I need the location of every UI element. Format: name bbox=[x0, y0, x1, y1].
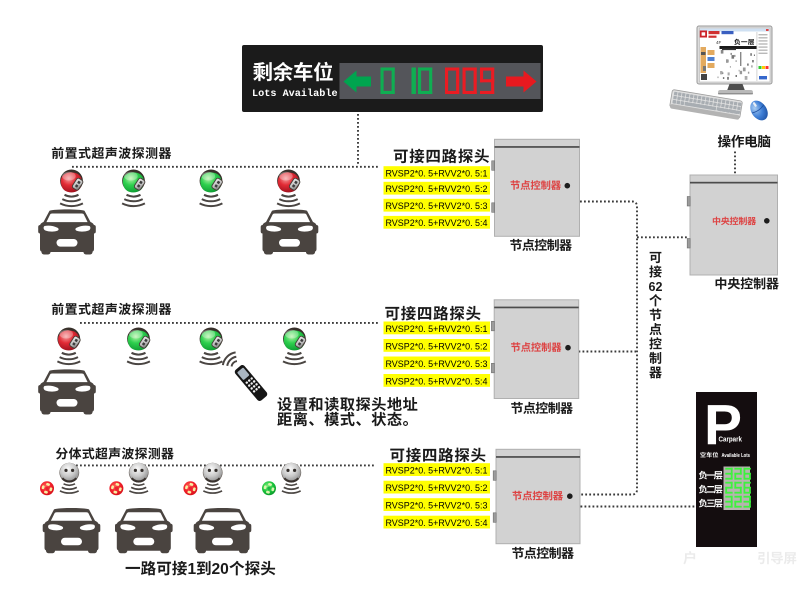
svg-text:RVSP2*0. 5+RVV2*0. 5:2: RVSP2*0. 5+RVV2*0. 5:2 bbox=[386, 341, 488, 351]
svg-text:Available Lots: Available Lots bbox=[722, 453, 751, 459]
svg-text:RVSP2*0. 5+RVV2*0. 5:3: RVSP2*0. 5+RVV2*0. 5:3 bbox=[386, 501, 488, 511]
svg-text:RVSP2*0. 5+RVV2*0. 5:4: RVSP2*0. 5+RVV2*0. 5:4 bbox=[386, 218, 488, 228]
svg-text:RVSP2*0. 5+RVV2*0. 5:4: RVSP2*0. 5+RVV2*0. 5:4 bbox=[386, 518, 488, 528]
svg-text:RVSP2*0. 5+RVV2*0. 5:4: RVSP2*0. 5+RVV2*0. 5:4 bbox=[386, 376, 488, 386]
svg-text:RVSP2*0. 5+RVV2*0. 5:1: RVSP2*0. 5+RVV2*0. 5:1 bbox=[386, 169, 488, 179]
svg-text:P: P bbox=[704, 393, 742, 457]
svg-text:RVSP2*0. 5+RVV2*0. 5:2: RVSP2*0. 5+RVV2*0. 5:2 bbox=[386, 184, 488, 194]
svg-text:Carpark: Carpark bbox=[719, 437, 743, 444]
svg-text:RVSP2*0. 5+RVV2*0. 5:2: RVSP2*0. 5+RVV2*0. 5:2 bbox=[386, 483, 488, 493]
svg-text:4F: 4F bbox=[716, 40, 722, 45]
svg-text:1: 1 bbox=[188, 561, 197, 578]
svg-text:20: 20 bbox=[212, 561, 230, 578]
svg-text:Lots Available: Lots Available bbox=[252, 88, 338, 100]
svg-text:RVSP2*0. 5+RVV2*0. 5:3: RVSP2*0. 5+RVV2*0. 5:3 bbox=[386, 359, 488, 369]
svg-text:RVSP2*0. 5+RVV2*0. 5:3: RVSP2*0. 5+RVV2*0. 5:3 bbox=[386, 201, 488, 211]
svg-text:RVSP2*0. 5+RVV2*0. 5:1: RVSP2*0. 5+RVV2*0. 5:1 bbox=[386, 324, 488, 334]
svg-text:RVSP2*0. 5+RVV2*0. 5:1: RVSP2*0. 5+RVV2*0. 5:1 bbox=[386, 466, 488, 476]
svg-text:62: 62 bbox=[649, 280, 663, 294]
